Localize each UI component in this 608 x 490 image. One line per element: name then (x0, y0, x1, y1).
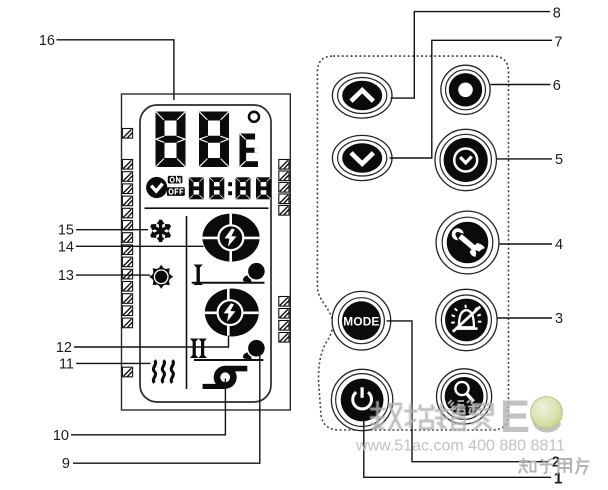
svg-text:8: 8 (553, 5, 561, 21)
svg-text:10: 10 (53, 428, 69, 444)
svg-text:11: 11 (59, 356, 74, 372)
svg-text:15: 15 (58, 223, 74, 239)
svg-text:12: 12 (56, 340, 72, 356)
svg-text:MODE: MODE (343, 314, 379, 328)
svg-text:3: 3 (555, 311, 563, 327)
svg-text:www.51ac.com 400 880 8811: www.51ac.com 400 880 8811 (355, 438, 565, 455)
svg-text:14: 14 (58, 239, 74, 255)
svg-text:7: 7 (554, 34, 562, 50)
svg-text:16: 16 (39, 33, 55, 49)
svg-text:5: 5 (555, 152, 563, 168)
svg-text:13: 13 (58, 268, 74, 284)
svg-text:6: 6 (553, 78, 561, 94)
svg-text:4: 4 (555, 237, 563, 253)
svg-text:9: 9 (62, 456, 70, 472)
